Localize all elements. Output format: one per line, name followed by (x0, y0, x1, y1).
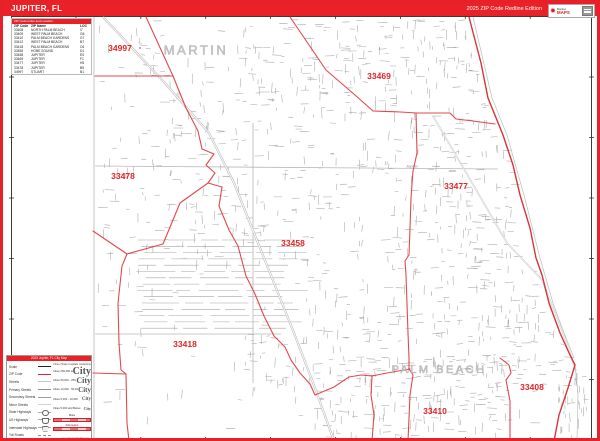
legend-city-size: Cities 5,000 - 10,000 City (53, 395, 91, 404)
scale-bar: Miles (53, 414, 91, 422)
grid-ticks (9, 14, 594, 441)
legend-item: US Highways (9, 416, 51, 424)
legend-sample-line (38, 412, 51, 413)
legend-sample-line (38, 435, 51, 436)
zip-boundaries (93, 17, 511, 441)
legend-city-size: Cities 5,000 and Below City (53, 404, 91, 413)
shoreline (473, 17, 578, 441)
header-bar: JUPITER, FL 2025 ZIP Code Redline Editio… (3, 3, 597, 16)
zip-code-label: 33408 (520, 382, 544, 392)
legend-sample-line (38, 404, 51, 405)
scale-bar-rule (53, 418, 91, 423)
legend-city-size: Cities 50,000 - 250,000 City (53, 376, 91, 385)
brand-logo: ✹ Market MAPS (548, 4, 595, 18)
legend-sample-line (38, 389, 51, 390)
zip-code-label: 33410 (423, 406, 447, 416)
legend-item: Interstate Highways (9, 424, 51, 432)
city-marker-dot (139, 47, 141, 49)
street-noise (98, 20, 588, 441)
railroad-line (103, 17, 576, 441)
legend-city-items: Cities (State Capitals Underlined) Citie… (53, 363, 91, 431)
zip-code-label: 34997 (108, 43, 132, 53)
map-legend: 2025 Jupiter, FL City Map Scale ZIP Code… (6, 355, 92, 441)
legend-city-size: Cities 250,000 and Above City (53, 367, 91, 376)
coastline (469, 17, 575, 441)
edition-label: 2025 ZIP Code Redline Edition (467, 3, 542, 15)
county-label: PALM BEACH (391, 364, 486, 376)
legend-sample-line (38, 419, 51, 420)
table-row: 34997 STUART B1 (12, 70, 91, 74)
legend-item: Primary Streets (9, 386, 51, 394)
legend-copyright: www.MarketMAPS.com (62, 437, 89, 440)
legend-item: ZIP Code (9, 371, 51, 379)
town-label: Jupiter (406, 164, 418, 169)
legend-sample-line (38, 374, 51, 375)
legend-item: Secondary Streets (9, 393, 51, 401)
page-title: JUPITER, FL (11, 3, 62, 15)
zip-code-label: 33477 (444, 181, 468, 191)
legend-sample-line (38, 427, 51, 428)
zip-code-label: 33418 (173, 339, 197, 349)
scale-bar: Kilometers (53, 424, 91, 432)
zip-code-label: 33458 (281, 238, 305, 248)
brand-bottom: MAPS (557, 11, 570, 14)
zip-code-label: 33469 (367, 71, 391, 81)
legend-item: State Highways (9, 409, 51, 417)
major-roads (94, 17, 498, 440)
scale-bar-rule (53, 427, 91, 432)
edition-badge-icon (582, 6, 593, 16)
star-icon: ✹ (550, 8, 556, 15)
legend-sample-line (38, 366, 51, 367)
legend-sample-line (38, 397, 51, 398)
county-label: MARTIN (164, 43, 229, 58)
legend-line-items: Scale ZIP Code Streets Primary Streets S… (9, 363, 51, 439)
legend-item: Streets (9, 378, 51, 386)
legend-sample-line (38, 381, 51, 382)
legend-item: Minor Streets (9, 401, 51, 409)
zip-index-table: ZIP Code Index and Location ZIP Code ZIP… (11, 18, 92, 75)
map-drawing (3, 3, 600, 441)
legend-item: Toll Roads (9, 431, 51, 439)
zip-code-label: 33478 (111, 171, 135, 181)
legend-item: Scale (9, 363, 51, 371)
legend-city-size: Cities 10,000 - 50,000 City (53, 385, 91, 394)
zipcode-wall-map: MARTINPALM BEACH 34997334693347833477334… (0, 0, 600, 441)
